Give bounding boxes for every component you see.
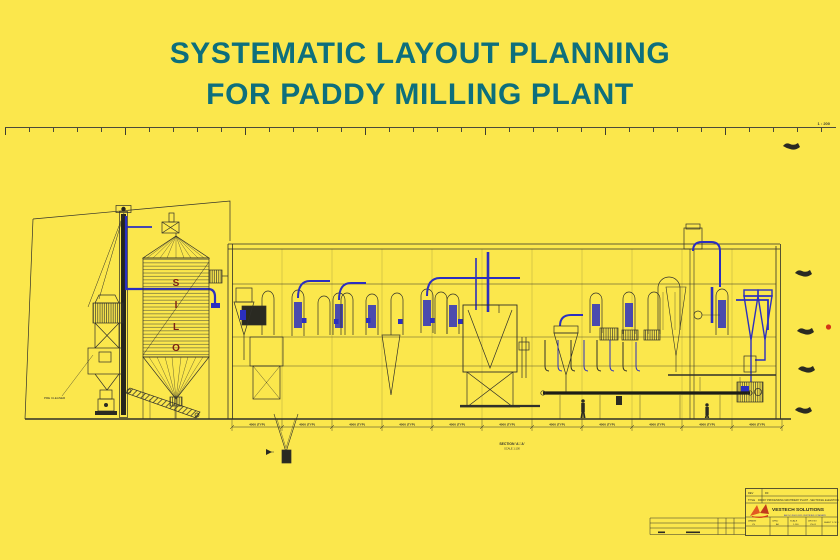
svg-text:4000 (TYP): 4000 (TYP) xyxy=(499,423,515,427)
field-drgno-value: VS-01 xyxy=(810,524,817,526)
svg-text:S: S xyxy=(173,278,180,289)
pre-cleaner-machine xyxy=(62,295,123,415)
svg-text:4000 (TYP): 4000 (TYP) xyxy=(749,423,765,427)
left-machine-label: PRE CLEANER xyxy=(44,396,66,400)
svg-text:4000 (TYP): 4000 (TYP) xyxy=(449,423,465,427)
svg-text:O: O xyxy=(172,343,180,354)
sheet-border-strip xyxy=(650,518,746,535)
svg-text:4000 (TYP): 4000 (TYP) xyxy=(699,423,715,427)
title-block: REV R0 TITLE PADDY PROCESSING MACHINERY … xyxy=(746,489,840,536)
svg-text:I: I xyxy=(175,300,178,311)
title-label: TITLE xyxy=(748,498,755,502)
svg-text:4000 (TYP): 4000 (TYP) xyxy=(549,423,565,427)
company-logo xyxy=(750,504,769,518)
poster-canvas: SYSTEMATIC LAYOUT PLANNING FOR PADDY MIL… xyxy=(0,0,840,560)
revision-label: REV xyxy=(748,491,754,495)
field-drawn-label: DRAWN xyxy=(748,520,757,523)
discharge-spouts xyxy=(545,340,640,371)
svg-text:4000 (TYP): 4000 (TYP) xyxy=(299,423,315,427)
section-caption: SECTION 'A'-'A' SCALE 1:100 xyxy=(499,442,524,451)
svg-text:4000 (TYP): 4000 (TYP) xyxy=(599,423,615,427)
svg-text:SCALE 1:100: SCALE 1:100 xyxy=(504,447,520,451)
plant-layout-drawing: PRE CLEANER S I L O xyxy=(0,0,840,560)
silo xyxy=(143,213,228,419)
svg-text:4000 (TYP): 4000 (TYP) xyxy=(399,423,415,427)
field-scale-value: 1:100 xyxy=(793,524,799,526)
red-marker-dot xyxy=(826,324,831,329)
field-chkd-value: AK xyxy=(776,523,779,526)
mid-machines xyxy=(234,287,763,407)
field-drgno-label: DRG NO xyxy=(808,521,817,523)
svg-text:L: L xyxy=(173,322,179,333)
dimension-labels: 4000 (TYP) 4000 (TYP) 4000 (TYP) 4000 (T… xyxy=(249,423,765,427)
svg-text:4000 (TYP): 4000 (TYP) xyxy=(649,423,665,427)
belt-conveyors xyxy=(460,375,776,419)
revision-value: R0 xyxy=(765,491,769,495)
field-drawn-value: VS xyxy=(752,524,755,526)
company-name: VESTECH SOLUTIONS xyxy=(772,507,825,513)
svg-text:4000 (TYP): 4000 (TYP) xyxy=(249,423,265,427)
svg-text:SECTION 'A'-'A': SECTION 'A'-'A' xyxy=(499,442,524,446)
field-chkd-label: CHKD xyxy=(772,521,779,523)
company-tagline: AN ISO 9001:2015 CERTIFIED COMPANY xyxy=(784,514,827,517)
inclined-conveyor xyxy=(126,388,200,419)
section-markers xyxy=(783,143,815,414)
field-scale-label: SCALE xyxy=(790,520,798,523)
drawing-title: PADDY PROCESSING MACHINERY PLANT - SECTI… xyxy=(758,499,839,502)
sheet-number: SHEET 1 OF 1 xyxy=(824,522,839,524)
mill-building-frame xyxy=(228,224,781,419)
svg-text:4000 (TYP): 4000 (TYP) xyxy=(349,423,365,427)
